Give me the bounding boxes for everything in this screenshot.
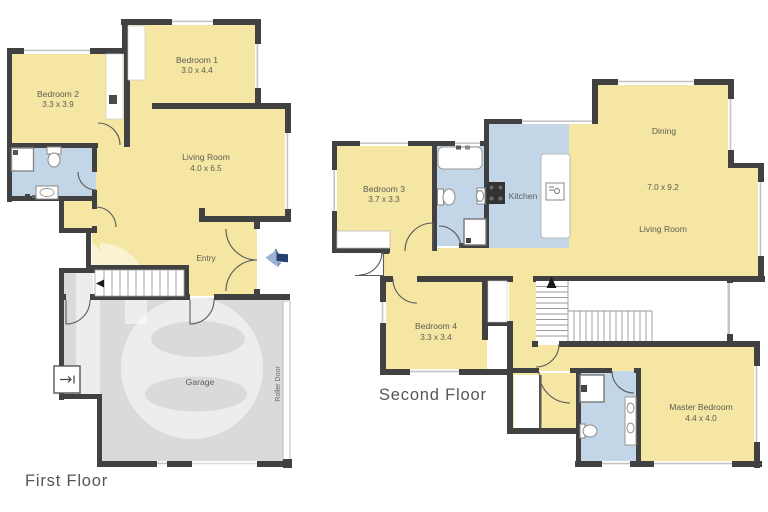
- svg-text:Bedroom 4: Bedroom 4: [415, 321, 457, 331]
- svg-text:Living Room: Living Room: [182, 152, 230, 162]
- svg-text:Bedroom 2: Bedroom 2: [37, 89, 79, 99]
- svg-text:Bedroom 3: Bedroom 3: [363, 184, 405, 194]
- svg-text:First Floor: First Floor: [25, 472, 108, 490]
- svg-text:7.0 x 9.2: 7.0 x 9.2: [647, 183, 679, 192]
- svg-text:3.0 x 4.4: 3.0 x 4.4: [181, 66, 213, 75]
- svg-text:4.4 x 4.0: 4.4 x 4.0: [685, 414, 717, 423]
- svg-text:3.3 x 3.4: 3.3 x 3.4: [420, 333, 452, 342]
- svg-text:Dining: Dining: [652, 126, 677, 136]
- svg-text:Roller Door: Roller Door: [275, 366, 282, 402]
- svg-text:Master Bedroom: Master Bedroom: [669, 402, 733, 412]
- svg-text:Second Floor: Second Floor: [379, 386, 487, 404]
- svg-text:Kitchen: Kitchen: [509, 191, 538, 201]
- svg-text:Entry: Entry: [196, 254, 216, 263]
- svg-text:4.0 x 6.5: 4.0 x 6.5: [190, 164, 222, 173]
- svg-text:Bedroom 1: Bedroom 1: [176, 55, 218, 65]
- svg-text:3.7 x 3.3: 3.7 x 3.3: [368, 195, 400, 204]
- svg-text:Garage: Garage: [186, 377, 215, 387]
- svg-text:3.3 x 3.9: 3.3 x 3.9: [42, 100, 74, 109]
- svg-text:Living Room: Living Room: [639, 224, 687, 234]
